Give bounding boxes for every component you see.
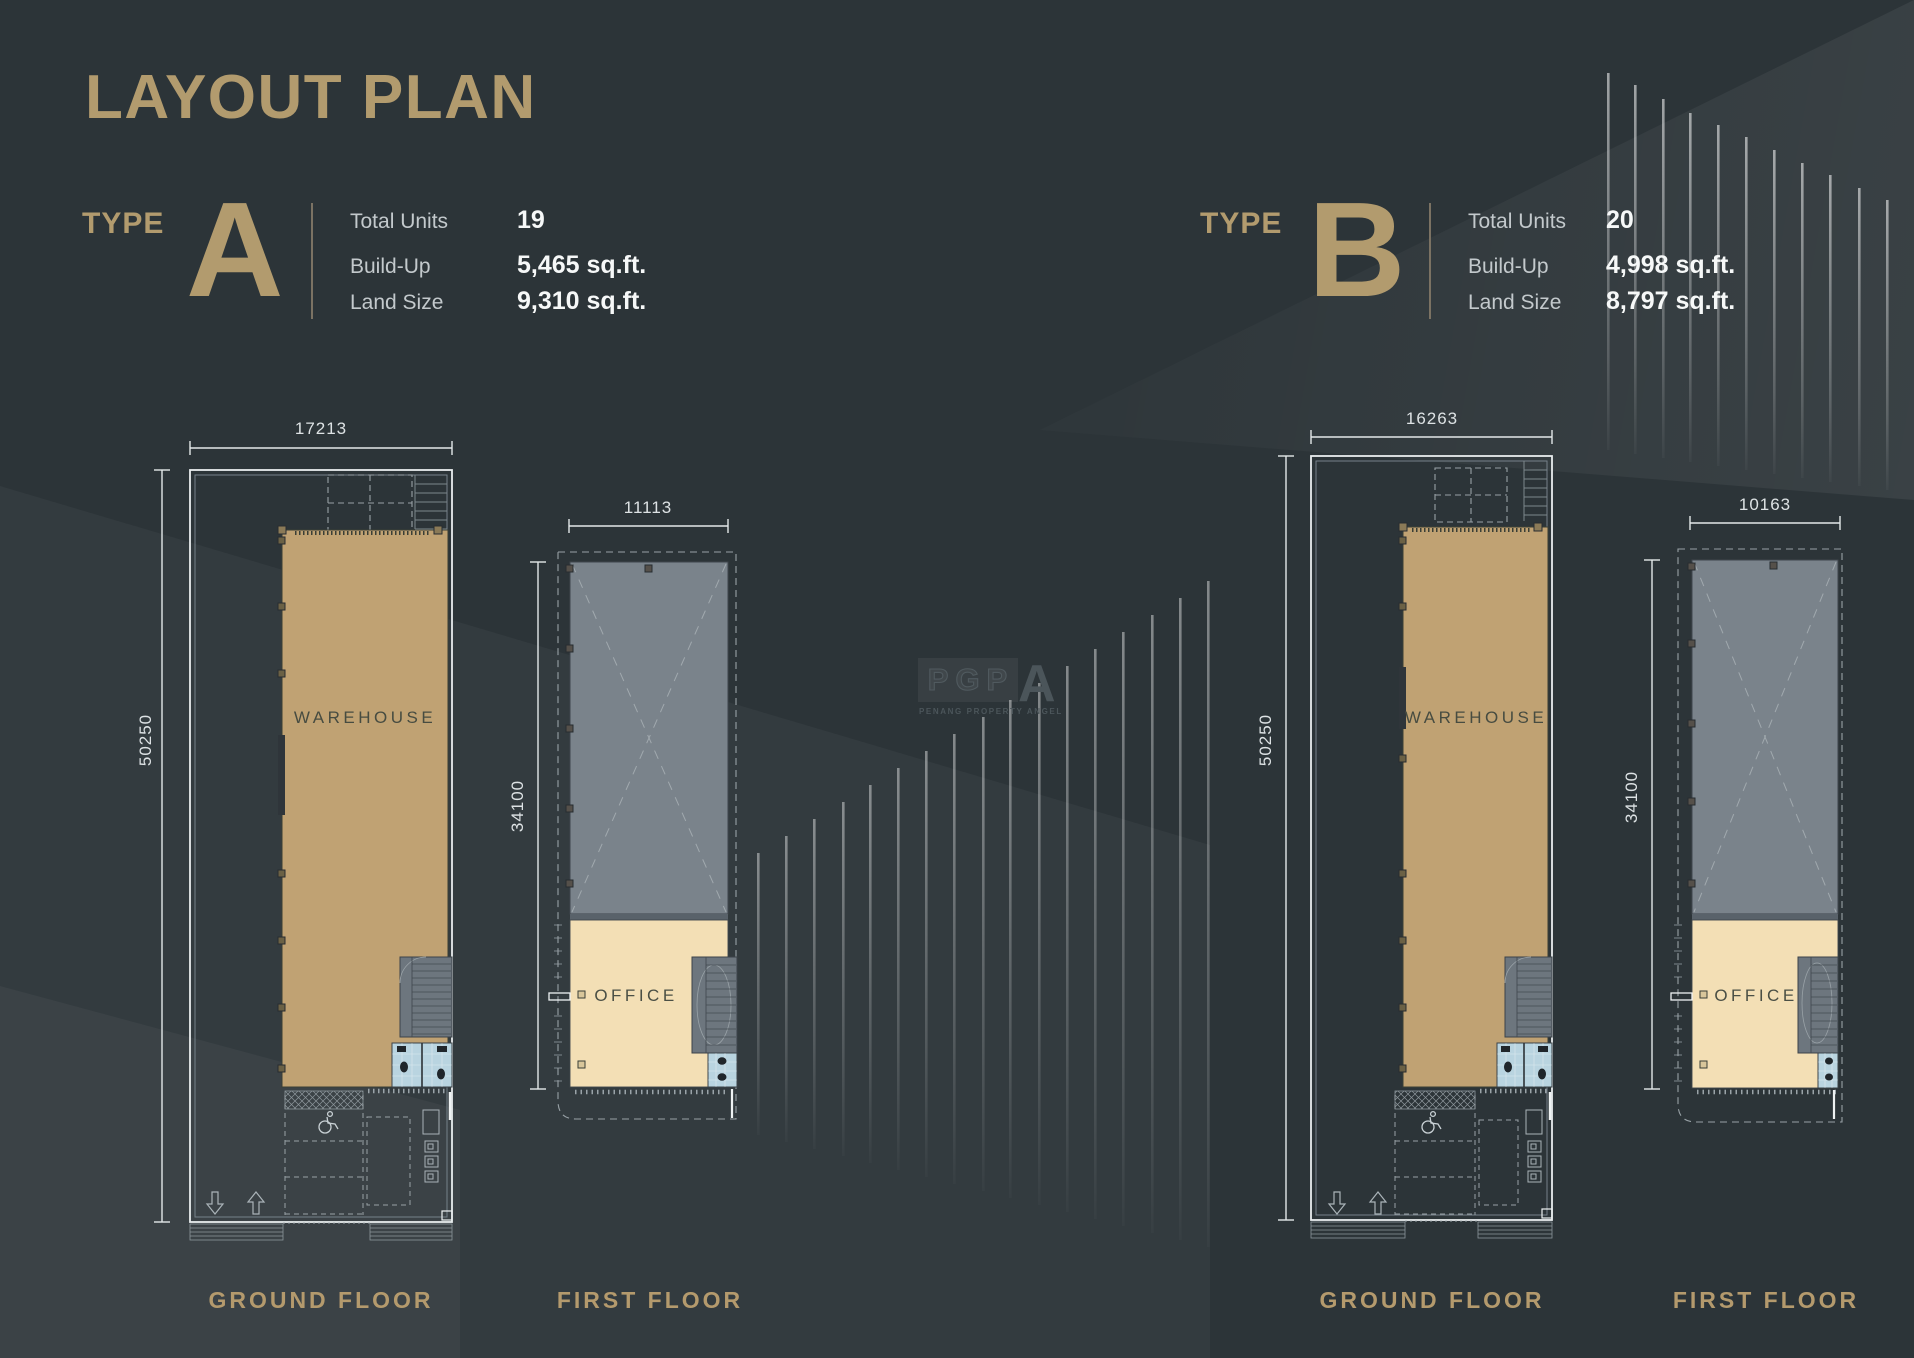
staircase — [1798, 957, 1838, 1053]
window-marker — [1671, 993, 1692, 1000]
ffb-width-dim: 10163 — [1739, 495, 1791, 515]
loading-hatch-area — [285, 1091, 363, 1109]
type-b-first-floor-plan — [1625, 455, 1850, 1140]
gfa-room-label: WAREHOUSE — [294, 708, 436, 728]
type-a-first-floor-plan — [510, 455, 750, 1140]
gfa-depth-dim: 50250 — [136, 714, 156, 766]
water-tanks — [423, 1110, 439, 1182]
type-b-divider — [1429, 203, 1431, 319]
accessible-parking-icon — [319, 1112, 338, 1133]
stat-value: 4,998 sq.ft. — [1606, 251, 1735, 280]
staircase — [1505, 957, 1552, 1037]
gfa-width-dim: 17213 — [295, 419, 347, 439]
loading-hatch-area — [1395, 1091, 1475, 1109]
corner-stair-grid — [415, 475, 447, 529]
layout-plan-page: LAYOUT PLAN TYPE A Total Units 19 Build-… — [0, 0, 1914, 1358]
window-marker — [549, 993, 570, 1000]
watermark-logo-box: PGP — [918, 658, 1018, 702]
type-b-stat-row: Total Units 20 — [1468, 206, 1634, 235]
watermark-logo-solid-letter: A — [1018, 654, 1056, 714]
roof-area — [566, 562, 728, 920]
watermark-logo-outline-text: PGP — [922, 662, 1014, 698]
frontage-steps — [190, 1224, 452, 1240]
type-a-stat-row: Land Size 9,310 sq.ft. — [350, 287, 646, 316]
staircase — [400, 957, 452, 1037]
stat-label: Build-Up — [1468, 255, 1606, 279]
type-b-word: TYPE — [1200, 207, 1282, 241]
drive-arrows — [1329, 1192, 1386, 1214]
drive-arrows — [207, 1192, 264, 1214]
type-b-ground-floor-plan — [1240, 415, 1585, 1250]
watermark-tagline: PENANG PROPERTY ANGEL — [919, 707, 1063, 716]
toilet-area — [1497, 1043, 1552, 1087]
ffa-room-label: OFFICE — [594, 986, 677, 1006]
staircase — [692, 957, 737, 1053]
water-tanks — [1526, 1110, 1542, 1182]
corner-stair-grid — [1524, 461, 1547, 521]
type-a-ground-floor-plan — [120, 415, 465, 1250]
ffa-width-dim: 11113 — [624, 498, 673, 518]
parking-stalls-dashed — [1395, 1095, 1518, 1215]
type-a-word: TYPE — [82, 207, 164, 241]
ffb-floor-label: FIRST FLOOR — [1673, 1287, 1859, 1314]
type-b-letter: B — [1308, 186, 1406, 314]
gfb-depth-dim: 50250 — [1256, 714, 1276, 766]
stat-label: Land Size — [350, 291, 517, 315]
gfb-width-dim: 16263 — [1406, 409, 1458, 429]
stat-label: Land Size — [1468, 291, 1606, 315]
stat-value: 19 — [517, 206, 545, 235]
accessible-parking-icon — [1422, 1112, 1441, 1133]
stat-value: 9,310 sq.ft. — [517, 287, 646, 316]
toilet-area — [392, 1043, 452, 1087]
type-b-stat-row: Land Size 8,797 sq.ft. — [1468, 287, 1735, 316]
toilet-area — [708, 1053, 737, 1087]
roof-area — [1688, 560, 1838, 920]
stat-label: Total Units — [1468, 210, 1606, 234]
gfa-floor-label: GROUND FLOOR — [208, 1287, 433, 1314]
type-a-letter: A — [186, 186, 284, 314]
ffb-depth-dim: 34100 — [1622, 771, 1642, 823]
dock-dashed-outline — [328, 475, 412, 530]
frontage-steps — [1311, 1222, 1552, 1238]
ffa-floor-label: FIRST FLOOR — [557, 1287, 743, 1314]
page-title: LAYOUT PLAN — [85, 62, 537, 133]
stat-label: Total Units — [350, 210, 517, 234]
gfb-floor-label: GROUND FLOOR — [1319, 1287, 1544, 1314]
type-a-stat-row: Build-Up 5,465 sq.ft. — [350, 251, 646, 280]
toilet-area — [1818, 1053, 1838, 1088]
stat-value: 20 — [1606, 206, 1634, 235]
ffa-depth-dim: 34100 — [508, 780, 528, 832]
type-a-stat-row: Total Units 19 — [350, 206, 545, 235]
type-b-stat-row: Build-Up 4,998 sq.ft. — [1468, 251, 1735, 280]
gfb-room-label: WAREHOUSE — [1405, 708, 1547, 728]
type-a-divider — [311, 203, 313, 319]
parking-stalls-dashed — [285, 1095, 410, 1215]
ffb-room-label: OFFICE — [1714, 986, 1797, 1006]
stat-value: 8,797 sq.ft. — [1606, 287, 1735, 316]
stat-value: 5,465 sq.ft. — [517, 251, 646, 280]
dock-dashed-outline — [1435, 468, 1507, 522]
stat-label: Build-Up — [350, 255, 517, 279]
